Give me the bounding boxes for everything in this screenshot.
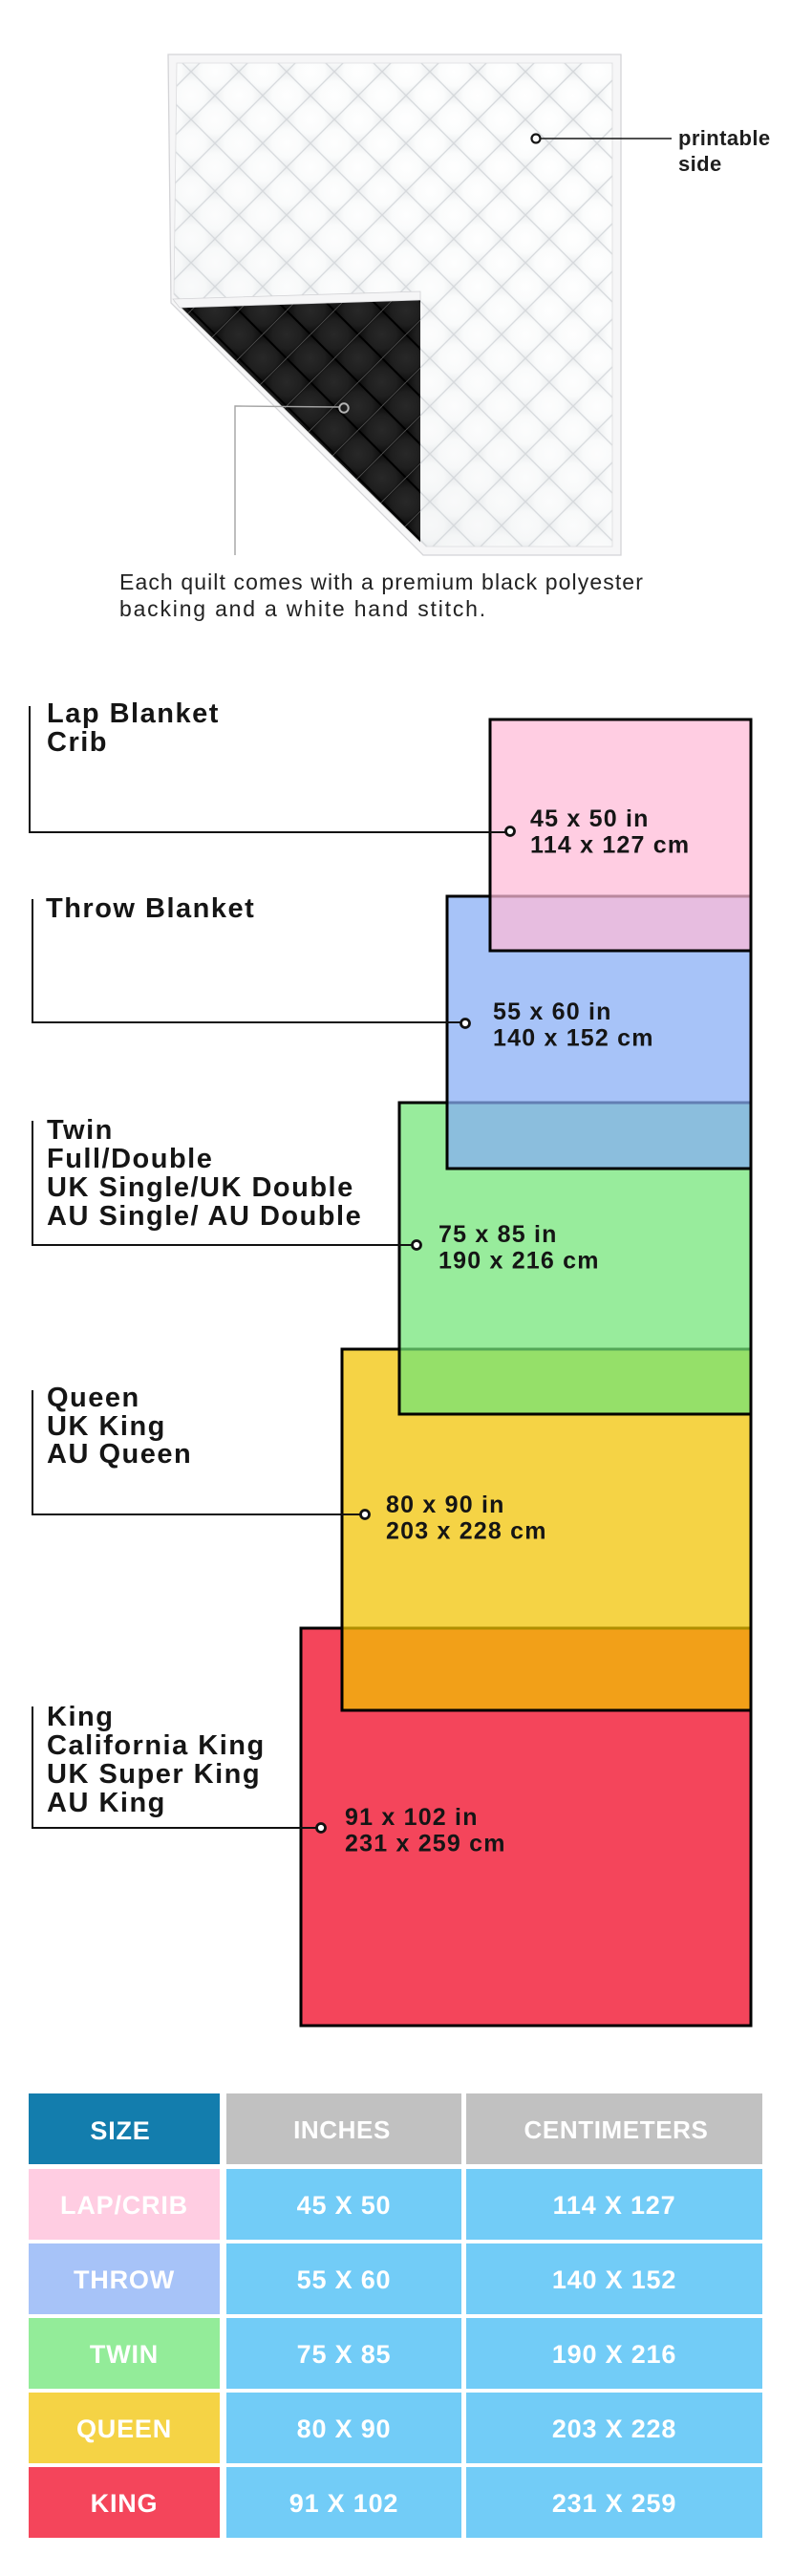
- svg-text:CENTIMETERS: CENTIMETERS: [524, 2115, 709, 2144]
- svg-text:45 X 50: 45 X 50: [297, 2191, 392, 2220]
- svg-text:QUEEN: QUEEN: [76, 2415, 172, 2443]
- svg-text:INCHES: INCHES: [293, 2115, 391, 2144]
- svg-text:printable: printable: [678, 126, 771, 150]
- svg-text:45 x 50 in: 45 x 50 in: [530, 805, 650, 832]
- svg-text:UK Single/UK Double: UK Single/UK Double: [47, 1172, 354, 1203]
- svg-text:backing and a white hand stitc: backing and a white hand stitch.: [119, 596, 487, 621]
- svg-text:91 x 102 in: 91 x 102 in: [345, 1804, 479, 1831]
- svg-text:140 X 152: 140 X 152: [552, 2265, 676, 2294]
- svg-text:203 X 228: 203 X 228: [552, 2415, 676, 2443]
- svg-text:AU Queen: AU Queen: [47, 1439, 192, 1470]
- svg-text:Full/Double: Full/Double: [47, 1144, 213, 1174]
- svg-text:55 X 60: 55 X 60: [297, 2265, 392, 2294]
- svg-text:75 x 85 in: 75 x 85 in: [438, 1221, 558, 1248]
- svg-text:UK Super King: UK Super King: [47, 1759, 261, 1790]
- svg-text:140 x 152 cm: 140 x 152 cm: [493, 1025, 654, 1052]
- svg-text:AU Single/ AU Double: AU Single/ AU Double: [47, 1201, 362, 1232]
- svg-text:231 x 259 cm: 231 x 259 cm: [345, 1831, 506, 1857]
- svg-text:80 X 90: 80 X 90: [297, 2415, 392, 2443]
- svg-text:Throw Blanket: Throw Blanket: [46, 893, 255, 924]
- svg-text:55 x 60 in: 55 x 60 in: [493, 998, 612, 1025]
- svg-text:California King: California King: [47, 1730, 266, 1761]
- svg-text:Each quilt comes with a premiu: Each quilt comes with a premium black po…: [119, 569, 644, 594]
- svg-text:91 X 102: 91 X 102: [289, 2489, 399, 2518]
- svg-text:UK King: UK King: [47, 1411, 166, 1442]
- svg-text:190 x 216 cm: 190 x 216 cm: [438, 1248, 600, 1275]
- svg-text:Crib: Crib: [47, 727, 108, 758]
- svg-text:side: side: [678, 152, 722, 176]
- svg-text:Twin: Twin: [47, 1115, 114, 1146]
- svg-text:LAP/CRIB: LAP/CRIB: [60, 2191, 188, 2220]
- svg-text:80 x 90 in: 80 x 90 in: [386, 1492, 505, 1518]
- svg-text:SIZE: SIZE: [90, 2116, 150, 2145]
- svg-text:114 X 127: 114 X 127: [553, 2191, 676, 2220]
- svg-text:114 x 127 cm: 114 x 127 cm: [530, 832, 690, 859]
- svg-text:190 X 216: 190 X 216: [552, 2340, 676, 2369]
- svg-text:AU King: AU King: [47, 1788, 166, 1818]
- svg-text:TWIN: TWIN: [90, 2340, 159, 2369]
- svg-text:Lap Blanket: Lap Blanket: [47, 698, 220, 729]
- svg-text:75 X 85: 75 X 85: [297, 2340, 392, 2369]
- svg-text:Queen: Queen: [47, 1383, 140, 1413]
- svg-text:THROW: THROW: [74, 2265, 175, 2294]
- svg-text:KING: KING: [91, 2489, 159, 2518]
- svg-text:203 x 228 cm: 203 x 228 cm: [386, 1518, 547, 1545]
- svg-text:231 X 259: 231 X 259: [552, 2489, 676, 2518]
- svg-text:King: King: [47, 1702, 114, 1732]
